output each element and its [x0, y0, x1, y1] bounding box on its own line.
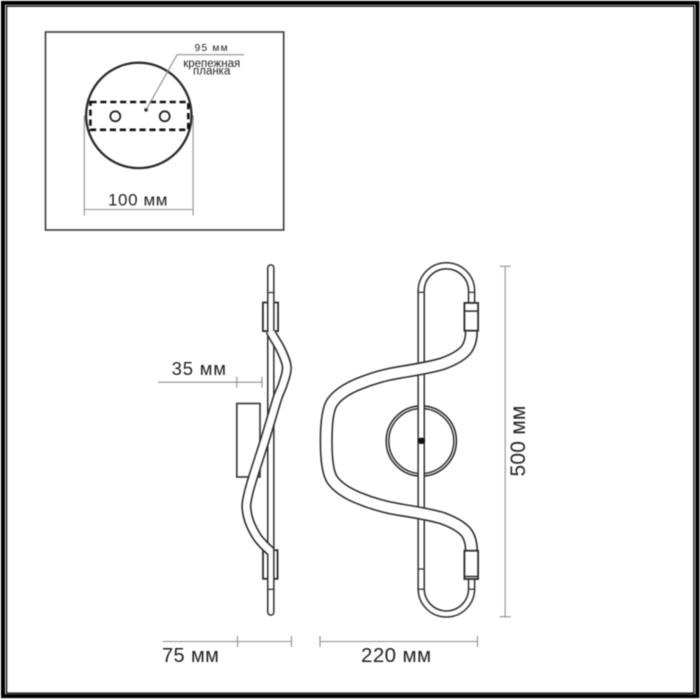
svg-text:220 мм: 220 мм	[361, 644, 432, 667]
svg-text:35 мм: 35 мм	[172, 358, 227, 379]
svg-text:75 мм: 75 мм	[162, 645, 219, 667]
svg-text:95 мм: 95 мм	[195, 43, 229, 54]
svg-text:100 мм: 100 мм	[108, 190, 168, 209]
svg-text:планка: планка	[193, 65, 231, 77]
svg-text:500 мм: 500 мм	[507, 406, 530, 477]
